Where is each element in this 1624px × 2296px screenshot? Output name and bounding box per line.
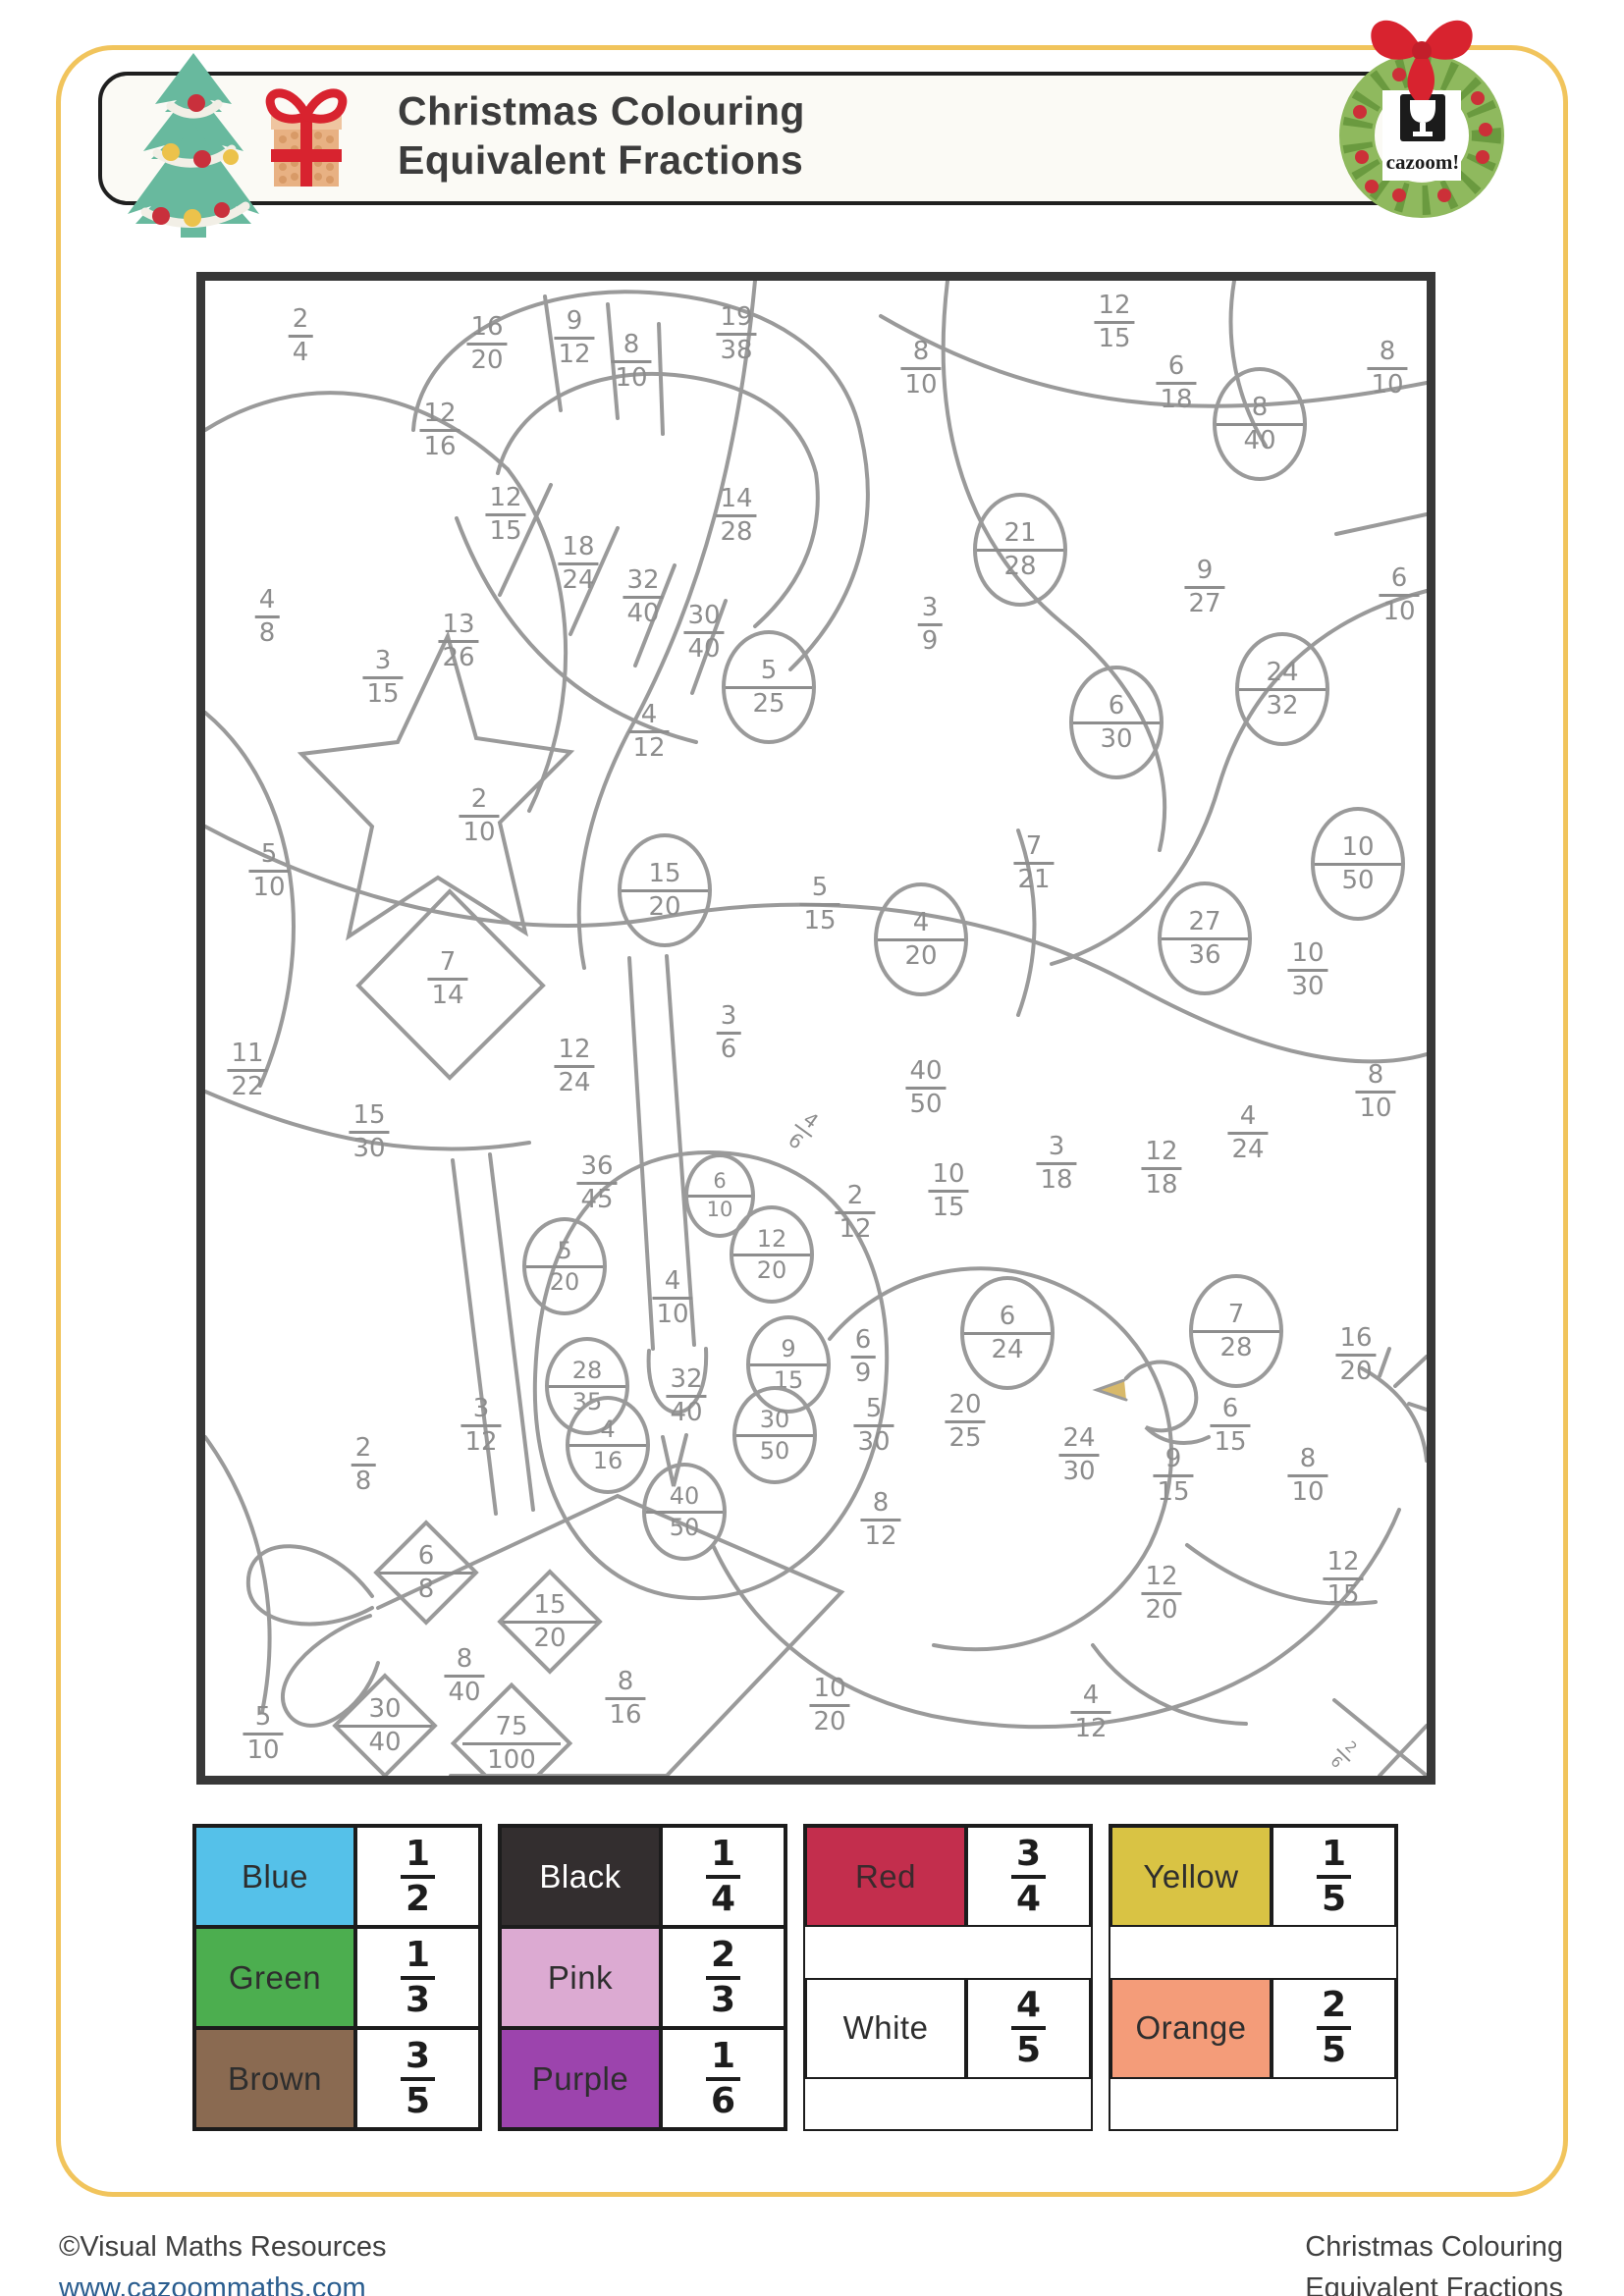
- fraction-region-12-20[interactable]: 1220: [1141, 1564, 1181, 1623]
- key-fraction: 14: [706, 1837, 740, 1917]
- fraction-region-27-36[interactable]: 2736: [1158, 881, 1252, 995]
- fraction-region-6-18[interactable]: 618: [1156, 353, 1196, 412]
- key-fraction: 34: [1011, 1837, 1046, 1917]
- key-colour-cell-orange: Orange: [1110, 1978, 1272, 2079]
- key-colour-cell-black: Black: [500, 1826, 661, 1927]
- fraction-region-40-50[interactable]: 4050: [905, 1058, 946, 1117]
- key-colour-label: Red: [855, 1858, 916, 1896]
- key-colour-cell-brown: Brown: [194, 2028, 355, 2129]
- fraction-region-7-14[interactable]: 714: [427, 949, 467, 1008]
- key-group-1: Blue12Green13Brown35: [192, 1824, 482, 2131]
- fraction-region-8-10[interactable]: 810: [900, 339, 941, 398]
- fraction-region-30-50[interactable]: 3050: [732, 1386, 817, 1484]
- key-colour-cell-blue: Blue: [194, 1826, 355, 1927]
- fraction-region-15-20[interactable]: 1520: [501, 1573, 599, 1671]
- key-fraction-cell-3-5: 35: [355, 2028, 480, 2129]
- fraction-region-7-28[interactable]: 728: [1189, 1274, 1283, 1388]
- key-colour-label: Black: [539, 1858, 621, 1896]
- key-fraction: 23: [706, 1938, 740, 2018]
- fraction-region-6-8[interactable]: 68: [377, 1523, 475, 1622]
- key-colour-label: Blue: [242, 1858, 308, 1896]
- fraction-region-12-24[interactable]: 1224: [554, 1037, 594, 1095]
- fraction-region-10-20[interactable]: 1020: [809, 1676, 849, 1735]
- key-colour-label: Orange: [1135, 2009, 1246, 2047]
- fraction-region-32-40[interactable]: 3240: [623, 567, 663, 626]
- fraction-region-7-21[interactable]: 721: [1013, 833, 1054, 892]
- key-colour-label: Brown: [228, 2060, 322, 2098]
- fraction-region-8-10[interactable]: 810: [611, 332, 651, 391]
- fraction-region-6-15[interactable]: 615: [1210, 1396, 1250, 1455]
- fraction-region-3-15[interactable]: 315: [362, 648, 403, 707]
- fraction-region-9-12[interactable]: 912: [554, 308, 594, 367]
- key-fraction-cell-4-5: 45: [966, 1978, 1091, 2079]
- fraction-region-30-40[interactable]: 3040: [683, 603, 724, 662]
- fraction-region-32-40[interactable]: 3240: [666, 1366, 706, 1425]
- fraction-region-12-18[interactable]: 1218: [1141, 1139, 1181, 1198]
- footer-title: Christmas Colouring Equivalent Fractions: [1305, 2226, 1563, 2296]
- fraction-region-5-30[interactable]: 530: [853, 1396, 893, 1455]
- key-colour-cell-red: Red: [805, 1826, 966, 1927]
- fraction-region-8-10[interactable]: 810: [1367, 339, 1407, 398]
- fraction-region-2-12[interactable]: 212: [835, 1183, 875, 1242]
- fraction-region-9-15[interactable]: 915: [1153, 1446, 1193, 1505]
- fraction-region-10-30[interactable]: 1030: [1287, 940, 1327, 999]
- fraction-region-5-10[interactable]: 510: [248, 841, 289, 900]
- page-title: Christmas Colouring Equivalent Fractions: [398, 86, 805, 185]
- fraction-region-4-8[interactable]: 48: [255, 587, 280, 646]
- key-colour-label: Green: [229, 1959, 321, 1997]
- fraction-region-6-9[interactable]: 69: [851, 1327, 876, 1386]
- fraction-region-5-25[interactable]: 525: [722, 630, 816, 744]
- key-group-3: Red34White45: [803, 1824, 1093, 2131]
- key-fraction: 45: [1011, 1988, 1046, 2068]
- fraction-region-3-12[interactable]: 312: [460, 1396, 501, 1455]
- key-fraction: 25: [1317, 1988, 1351, 2068]
- fraction-region-4-16[interactable]: 416: [566, 1396, 650, 1494]
- fraction-region-15-30[interactable]: 1530: [349, 1102, 389, 1161]
- fraction-region-20-25[interactable]: 2025: [945, 1392, 985, 1451]
- fraction-region-4-24[interactable]: 424: [1227, 1103, 1268, 1162]
- key-fraction-cell-3-4: 34: [966, 1826, 1091, 1927]
- key-colour-cell-green: Green: [194, 1927, 355, 2028]
- key-colour-label: Pink: [548, 1959, 613, 1997]
- key-fraction: 35: [401, 2039, 435, 2119]
- fraction-region-12-15[interactable]: 1215: [485, 485, 525, 544]
- fraction-region-4-10[interactable]: 410: [652, 1268, 692, 1327]
- fraction-region-12-20[interactable]: 1220: [730, 1205, 814, 1304]
- fraction-region-11-22[interactable]: 1122: [227, 1041, 267, 1099]
- fraction-region-19-38[interactable]: 1938: [716, 304, 756, 363]
- key-colour-label: Purple: [532, 2060, 628, 2098]
- fraction-region-8-40[interactable]: 840: [1213, 367, 1307, 481]
- website-link[interactable]: www.cazoommaths.com: [59, 2272, 366, 2296]
- key-fraction-cell-1-5: 15: [1272, 1826, 1396, 1927]
- fraction-region-2-4[interactable]: 24: [289, 306, 313, 365]
- fraction-region-3-9[interactable]: 39: [918, 595, 943, 654]
- gift-icon: [257, 77, 355, 192]
- fraction-region-8-16[interactable]: 816: [605, 1669, 645, 1728]
- footer: ©Visual Maths Resources www.cazoommaths.…: [59, 2226, 387, 2296]
- fraction-region-13-26[interactable]: 1326: [438, 612, 478, 670]
- fraction-region-6-30[interactable]: 630: [1069, 666, 1164, 779]
- fraction-region-16-20[interactable]: 1620: [1335, 1325, 1376, 1384]
- fraction-region-8-10[interactable]: 810: [1355, 1062, 1395, 1121]
- footer-title-line1: Christmas Colouring: [1305, 2226, 1563, 2268]
- fraction-region-24-30[interactable]: 2430: [1058, 1425, 1099, 1484]
- fraction-region-18-24[interactable]: 1824: [558, 534, 598, 593]
- key-fraction-cell-2-3: 23: [661, 1927, 785, 2028]
- page-title-line2: Equivalent Fractions: [398, 135, 805, 185]
- fraction-region-4-20[interactable]: 420: [874, 882, 968, 996]
- key-fraction: 15: [1317, 1837, 1351, 1917]
- key-fraction: 12: [401, 1837, 435, 1917]
- key-fraction-cell-1-6: 16: [661, 2028, 785, 2129]
- fraction-region-4-12[interactable]: 412: [1070, 1682, 1110, 1741]
- fraction-region-10-15[interactable]: 1015: [928, 1161, 968, 1220]
- key-group-4: Yellow15Orange25: [1109, 1824, 1398, 2131]
- fraction-region-6-24[interactable]: 624: [960, 1276, 1055, 1390]
- key-colour-cell-purple: Purple: [500, 2028, 661, 2129]
- fraction-region-5-10[interactable]: 510: [243, 1704, 283, 1763]
- colour-key: Blue12Green13Brown35Black14Pink23Purple1…: [192, 1824, 1414, 2131]
- fraction-region-2-10[interactable]: 210: [459, 786, 499, 845]
- fraction-region-75-100[interactable]: 75100: [462, 1694, 561, 1785]
- fraction-region-8-10[interactable]: 810: [1287, 1446, 1327, 1505]
- fraction-region-9-27[interactable]: 927: [1184, 558, 1224, 616]
- fraction-region-40-50[interactable]: 4050: [642, 1463, 727, 1561]
- footer-title-line2: Equivalent Fractions: [1305, 2268, 1563, 2296]
- fraction-region-16-20[interactable]: 1620: [466, 314, 507, 373]
- fraction-region-30-40[interactable]: 3040: [336, 1677, 434, 1775]
- key-fraction: 13: [401, 1938, 435, 2018]
- page-title-line1: Christmas Colouring: [398, 86, 805, 135]
- worksheet-page: Christmas Colouring Equivalent Fractions: [0, 0, 1624, 2296]
- key-fraction-cell-2-5: 25: [1272, 1978, 1396, 2079]
- fraction-region-4-12[interactable]: 412: [628, 702, 669, 761]
- key-fraction-cell-1-3: 13: [355, 1927, 480, 2028]
- fraction-region-15-20[interactable]: 1520: [618, 833, 712, 947]
- key-colour-label: Yellow: [1143, 1858, 1238, 1896]
- fraction-region-12-15[interactable]: 1215: [1323, 1549, 1363, 1608]
- fraction-region-36-45[interactable]: 3645: [576, 1153, 617, 1212]
- fraction-region-5-20[interactable]: 520: [522, 1217, 607, 1315]
- fraction-region-14-28[interactable]: 1428: [716, 486, 756, 545]
- key-fraction: 16: [706, 2039, 740, 2119]
- fraction-region-5-15[interactable]: 515: [799, 875, 839, 934]
- cazoom-wreath-logo: cazoom!: [1311, 2, 1533, 238]
- fraction-region-2-8[interactable]: 28: [352, 1435, 376, 1494]
- fraction-region-24-32[interactable]: 2432: [1235, 632, 1329, 746]
- key-fraction-cell-1-4: 14: [661, 1826, 785, 1927]
- cazoom-logo-text: cazoom!: [1386, 150, 1460, 174]
- fraction-region-12-16[interactable]: 1216: [419, 400, 460, 459]
- fraction-region-8-12[interactable]: 812: [860, 1490, 900, 1549]
- copyright-text: ©Visual Maths Resources: [59, 2226, 387, 2268]
- fraction-region-3-6[interactable]: 36: [717, 1003, 741, 1062]
- fraction-region-6-10[interactable]: 610: [1379, 565, 1419, 624]
- key-group-2: Black14Pink23Purple16: [498, 1824, 787, 2131]
- fraction-region-21-28[interactable]: 2128: [973, 493, 1067, 607]
- key-colour-cell-yellow: Yellow: [1110, 1826, 1272, 1927]
- key-colour-label: White: [843, 2009, 929, 2047]
- key-colour-cell-pink: Pink: [500, 1927, 661, 2028]
- fraction-region-10-50[interactable]: 1050: [1311, 807, 1405, 921]
- fraction-region-12-15[interactable]: 1215: [1094, 293, 1134, 351]
- key-fraction-cell-1-2: 12: [355, 1826, 480, 1927]
- key-colour-cell-white: White: [805, 1978, 966, 2079]
- fraction-region-3-18[interactable]: 318: [1036, 1134, 1076, 1193]
- colouring-picture: 2416209128101938810121561884081012161215…: [196, 272, 1435, 1785]
- christmas-tree-icon: [120, 49, 267, 238]
